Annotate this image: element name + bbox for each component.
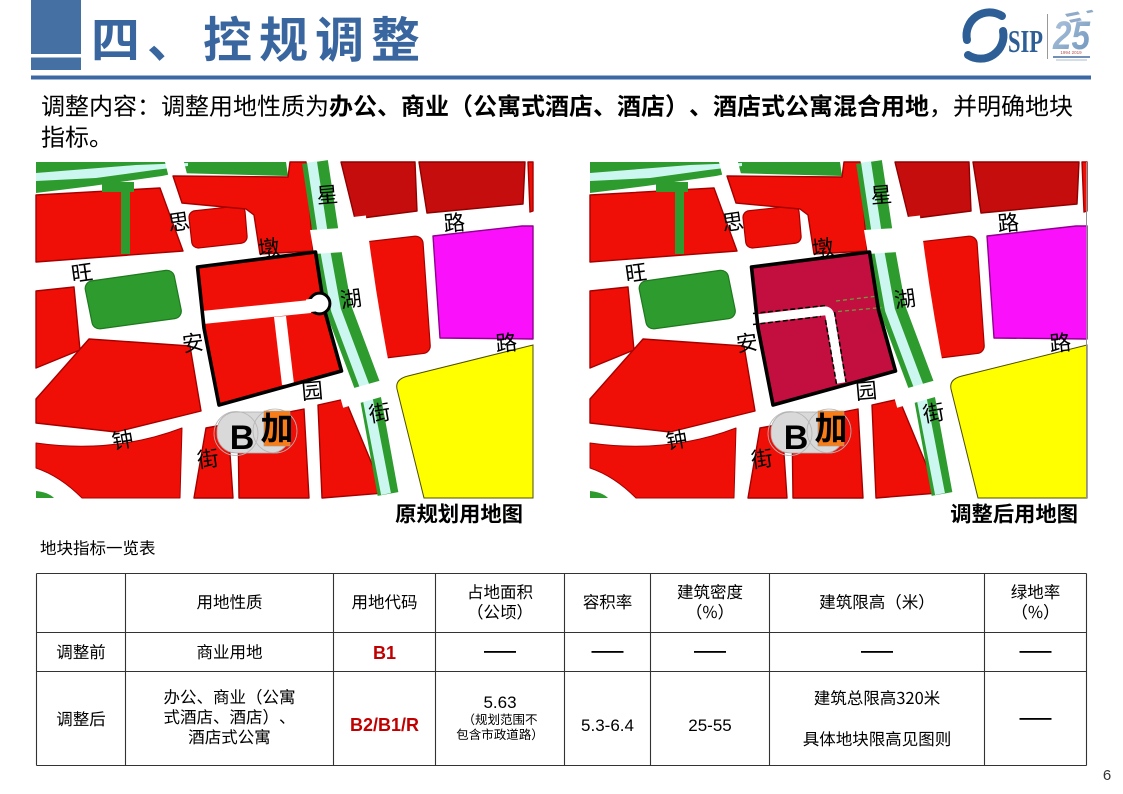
svg-text:B2/B1/R: B2/B1/R (350, 715, 419, 735)
svg-text:B: B (230, 419, 255, 457)
svg-text:B: B (784, 419, 809, 457)
svg-text:25-55: 25-55 (688, 716, 731, 735)
svg-text:SIP: SIP (1008, 23, 1043, 59)
svg-text:6: 6 (1103, 767, 1111, 784)
svg-text:B1: B1 (373, 643, 396, 663)
svg-text:5.63: 5.63 (483, 693, 516, 712)
svg-text:5.3-6.4: 5.3-6.4 (581, 716, 634, 735)
svg-text:1994 2019: 1994 2019 (1060, 50, 1082, 55)
